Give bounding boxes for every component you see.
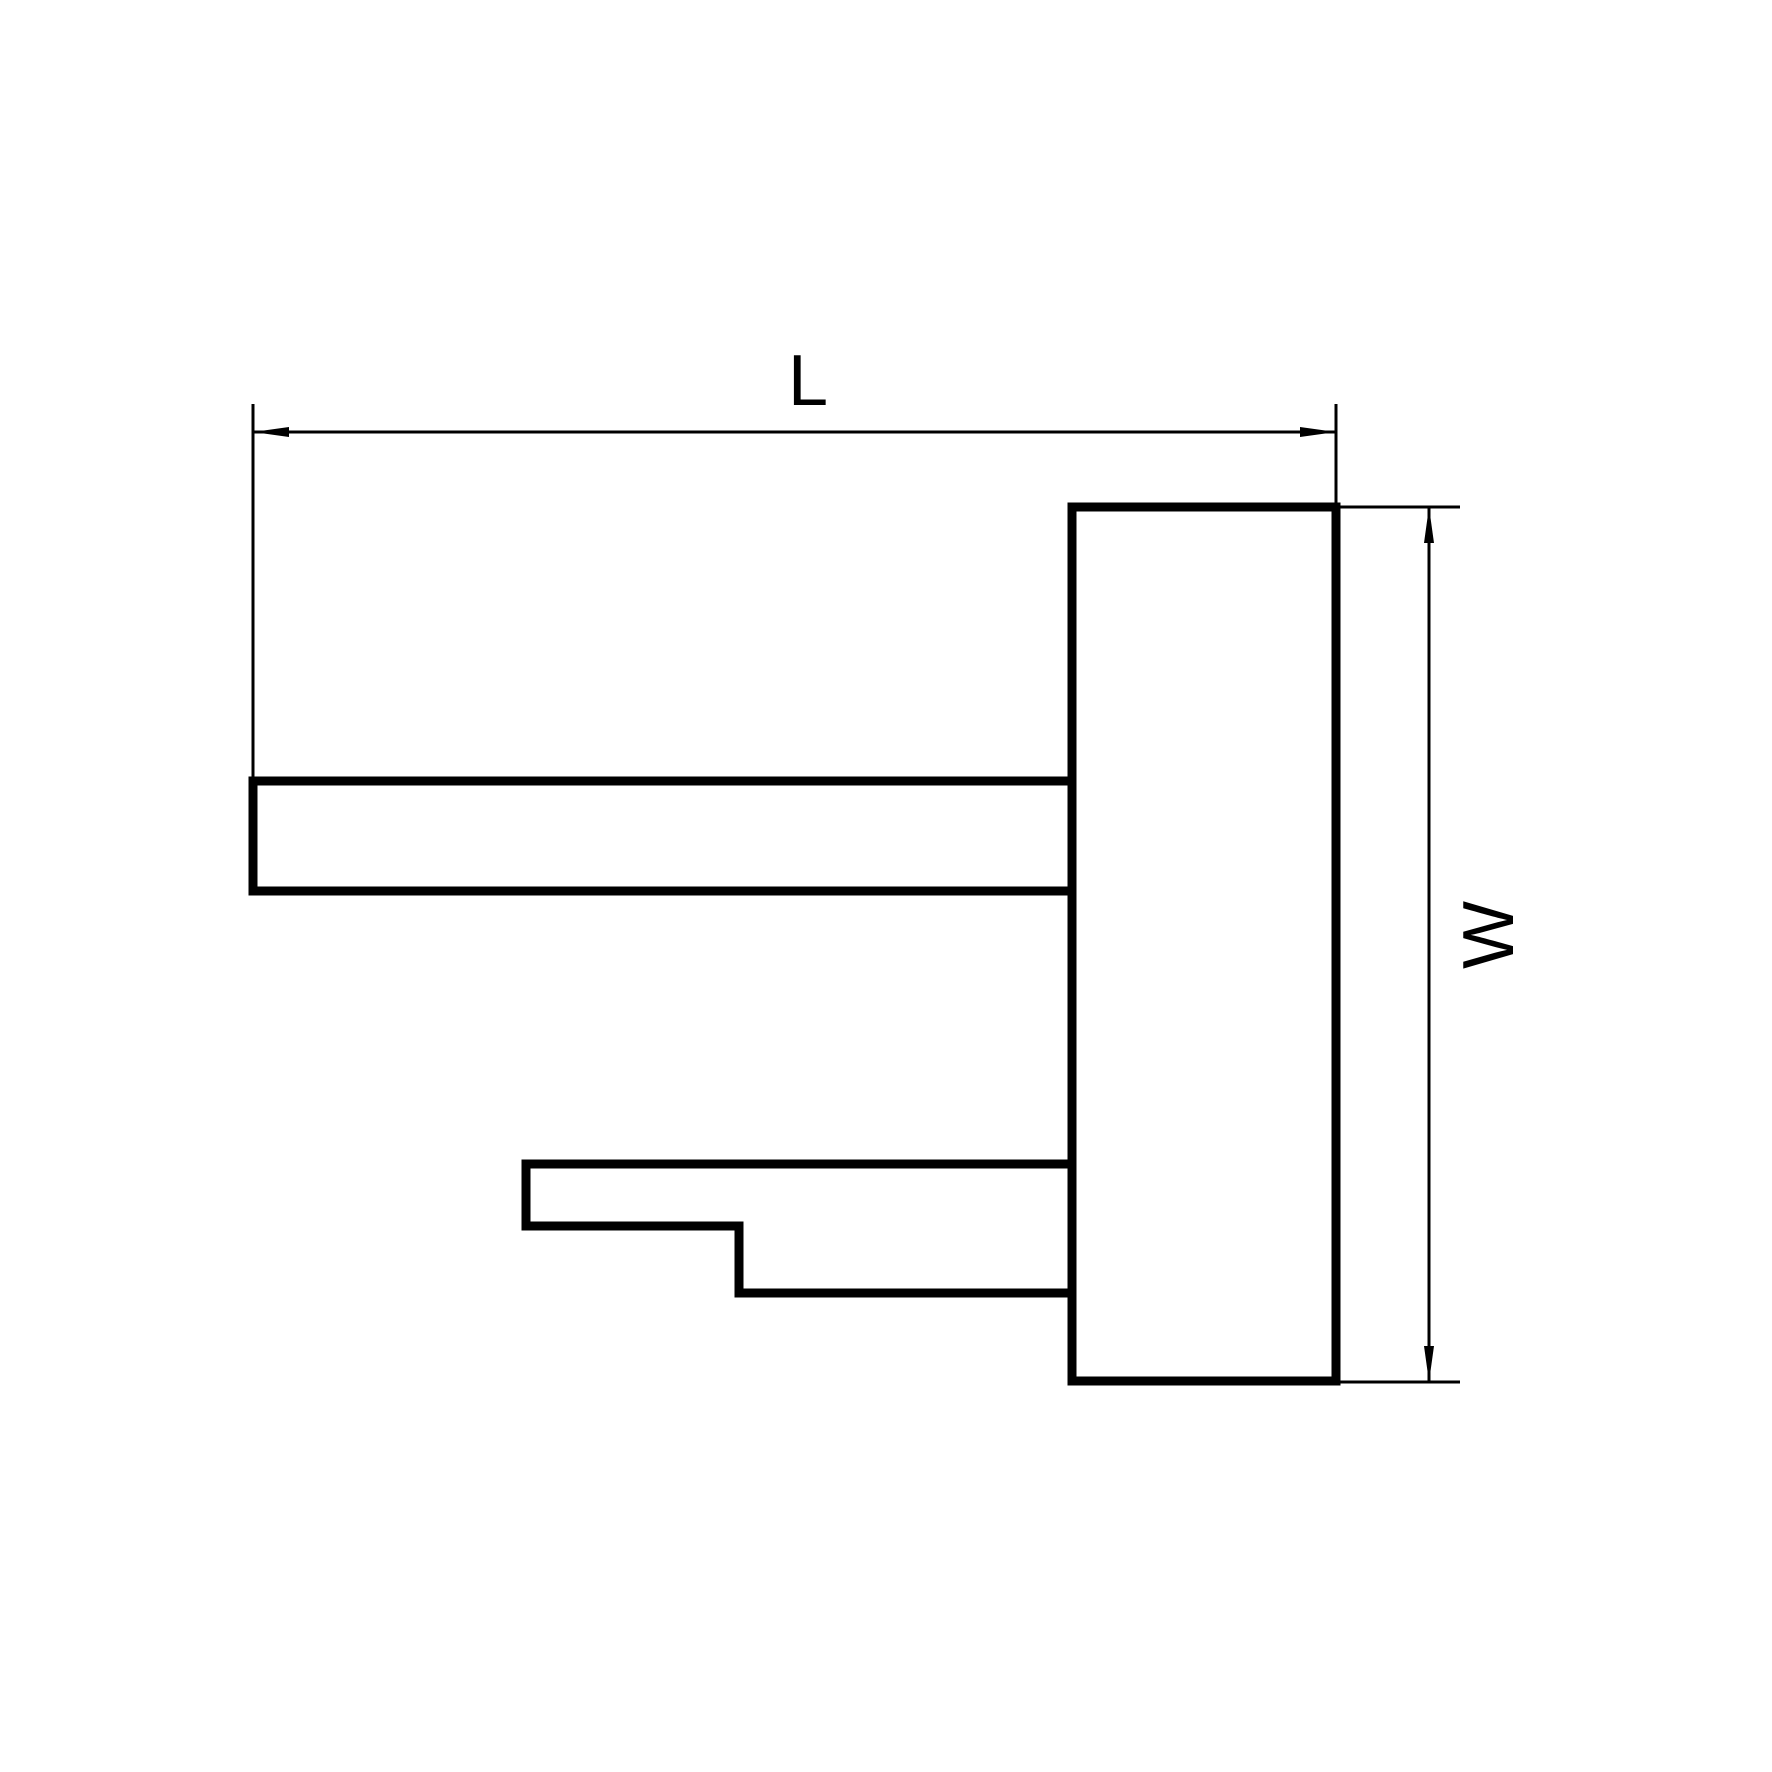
length-arrowhead-right-icon xyxy=(1300,427,1336,437)
technical-drawing-svg: L W xyxy=(0,0,1772,1772)
length-dimension-label: L xyxy=(788,341,828,421)
width-dimension-label: W xyxy=(1449,901,1529,969)
drawing-canvas: L W xyxy=(0,0,1772,1772)
upper-arm-outline xyxy=(253,781,1072,891)
width-arrowhead-top-icon xyxy=(1424,507,1434,543)
part-outline xyxy=(253,507,1336,1381)
length-arrowhead-left-icon xyxy=(253,427,289,437)
length-dimension: L xyxy=(253,341,1336,779)
width-arrowhead-bottom-icon xyxy=(1424,1346,1434,1382)
stepped-arm-outline xyxy=(526,1164,1072,1293)
width-dimension: W xyxy=(1338,507,1529,1382)
body-rectangle-outline xyxy=(1072,507,1336,1381)
